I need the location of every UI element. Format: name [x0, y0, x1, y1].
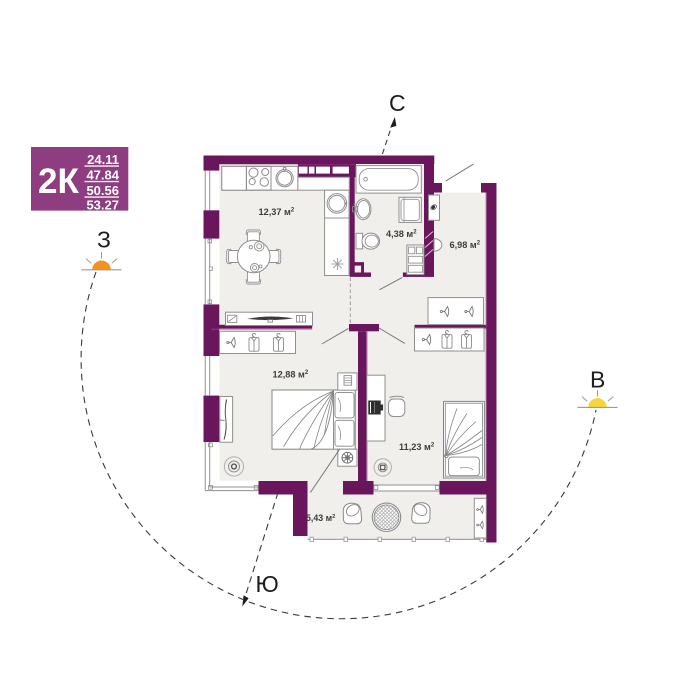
svg-text:6,98 м2: 6,98 м2: [450, 240, 481, 250]
svg-text:5,43 м2: 5,43 м2: [306, 513, 335, 523]
svg-text:С: С: [389, 90, 406, 116]
svg-text:4,38 м2: 4,38 м2: [386, 229, 417, 239]
svg-text:В: В: [590, 367, 605, 393]
svg-text:11,23 м2: 11,23 м2: [399, 442, 435, 452]
svg-text:12,88 м2: 12,88 м2: [273, 370, 309, 380]
svg-text:З: З: [97, 227, 111, 253]
svg-text:12,37 м2: 12,37 м2: [259, 207, 295, 217]
svg-text:50.56: 50.56: [86, 183, 119, 198]
svg-text:47.84: 47.84: [86, 167, 119, 182]
svg-text:Ю: Ю: [256, 571, 279, 597]
svg-text:24.11: 24.11: [87, 152, 119, 167]
svg-text:2К: 2К: [38, 162, 79, 201]
svg-text:53.27: 53.27: [86, 198, 119, 213]
